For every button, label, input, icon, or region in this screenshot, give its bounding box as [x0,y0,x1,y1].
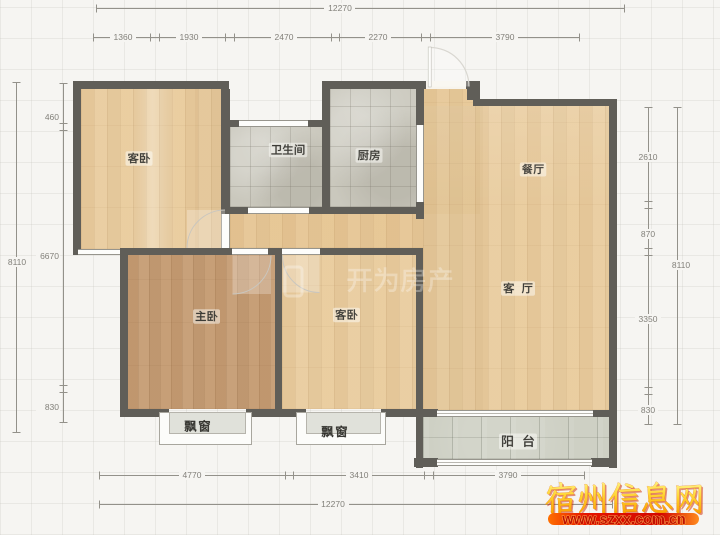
svg-text:830: 830 [45,402,59,412]
svg-text:3350: 3350 [639,314,658,324]
svg-text:1930: 1930 [180,32,199,42]
svg-text:12270: 12270 [328,3,352,13]
svg-text:3790: 3790 [499,470,518,480]
svg-text:www.szxx.com.cn: www.szxx.com.cn [561,512,686,528]
svg-text:460: 460 [45,112,59,122]
svg-text:870: 870 [641,229,655,239]
svg-text:8110: 8110 [8,257,27,267]
svg-text:8110: 8110 [672,260,691,270]
svg-text:12270: 12270 [321,499,345,509]
svg-text:4770: 4770 [183,470,202,480]
svg-text:2470: 2470 [275,32,294,42]
svg-text:1360: 1360 [114,32,133,42]
svg-text:3790: 3790 [496,32,515,42]
svg-text:830: 830 [641,405,655,415]
svg-text:3410: 3410 [350,470,369,480]
svg-text:2270: 2270 [369,32,388,42]
svg-text:2610: 2610 [639,152,658,162]
svg-text:6670: 6670 [40,251,59,261]
